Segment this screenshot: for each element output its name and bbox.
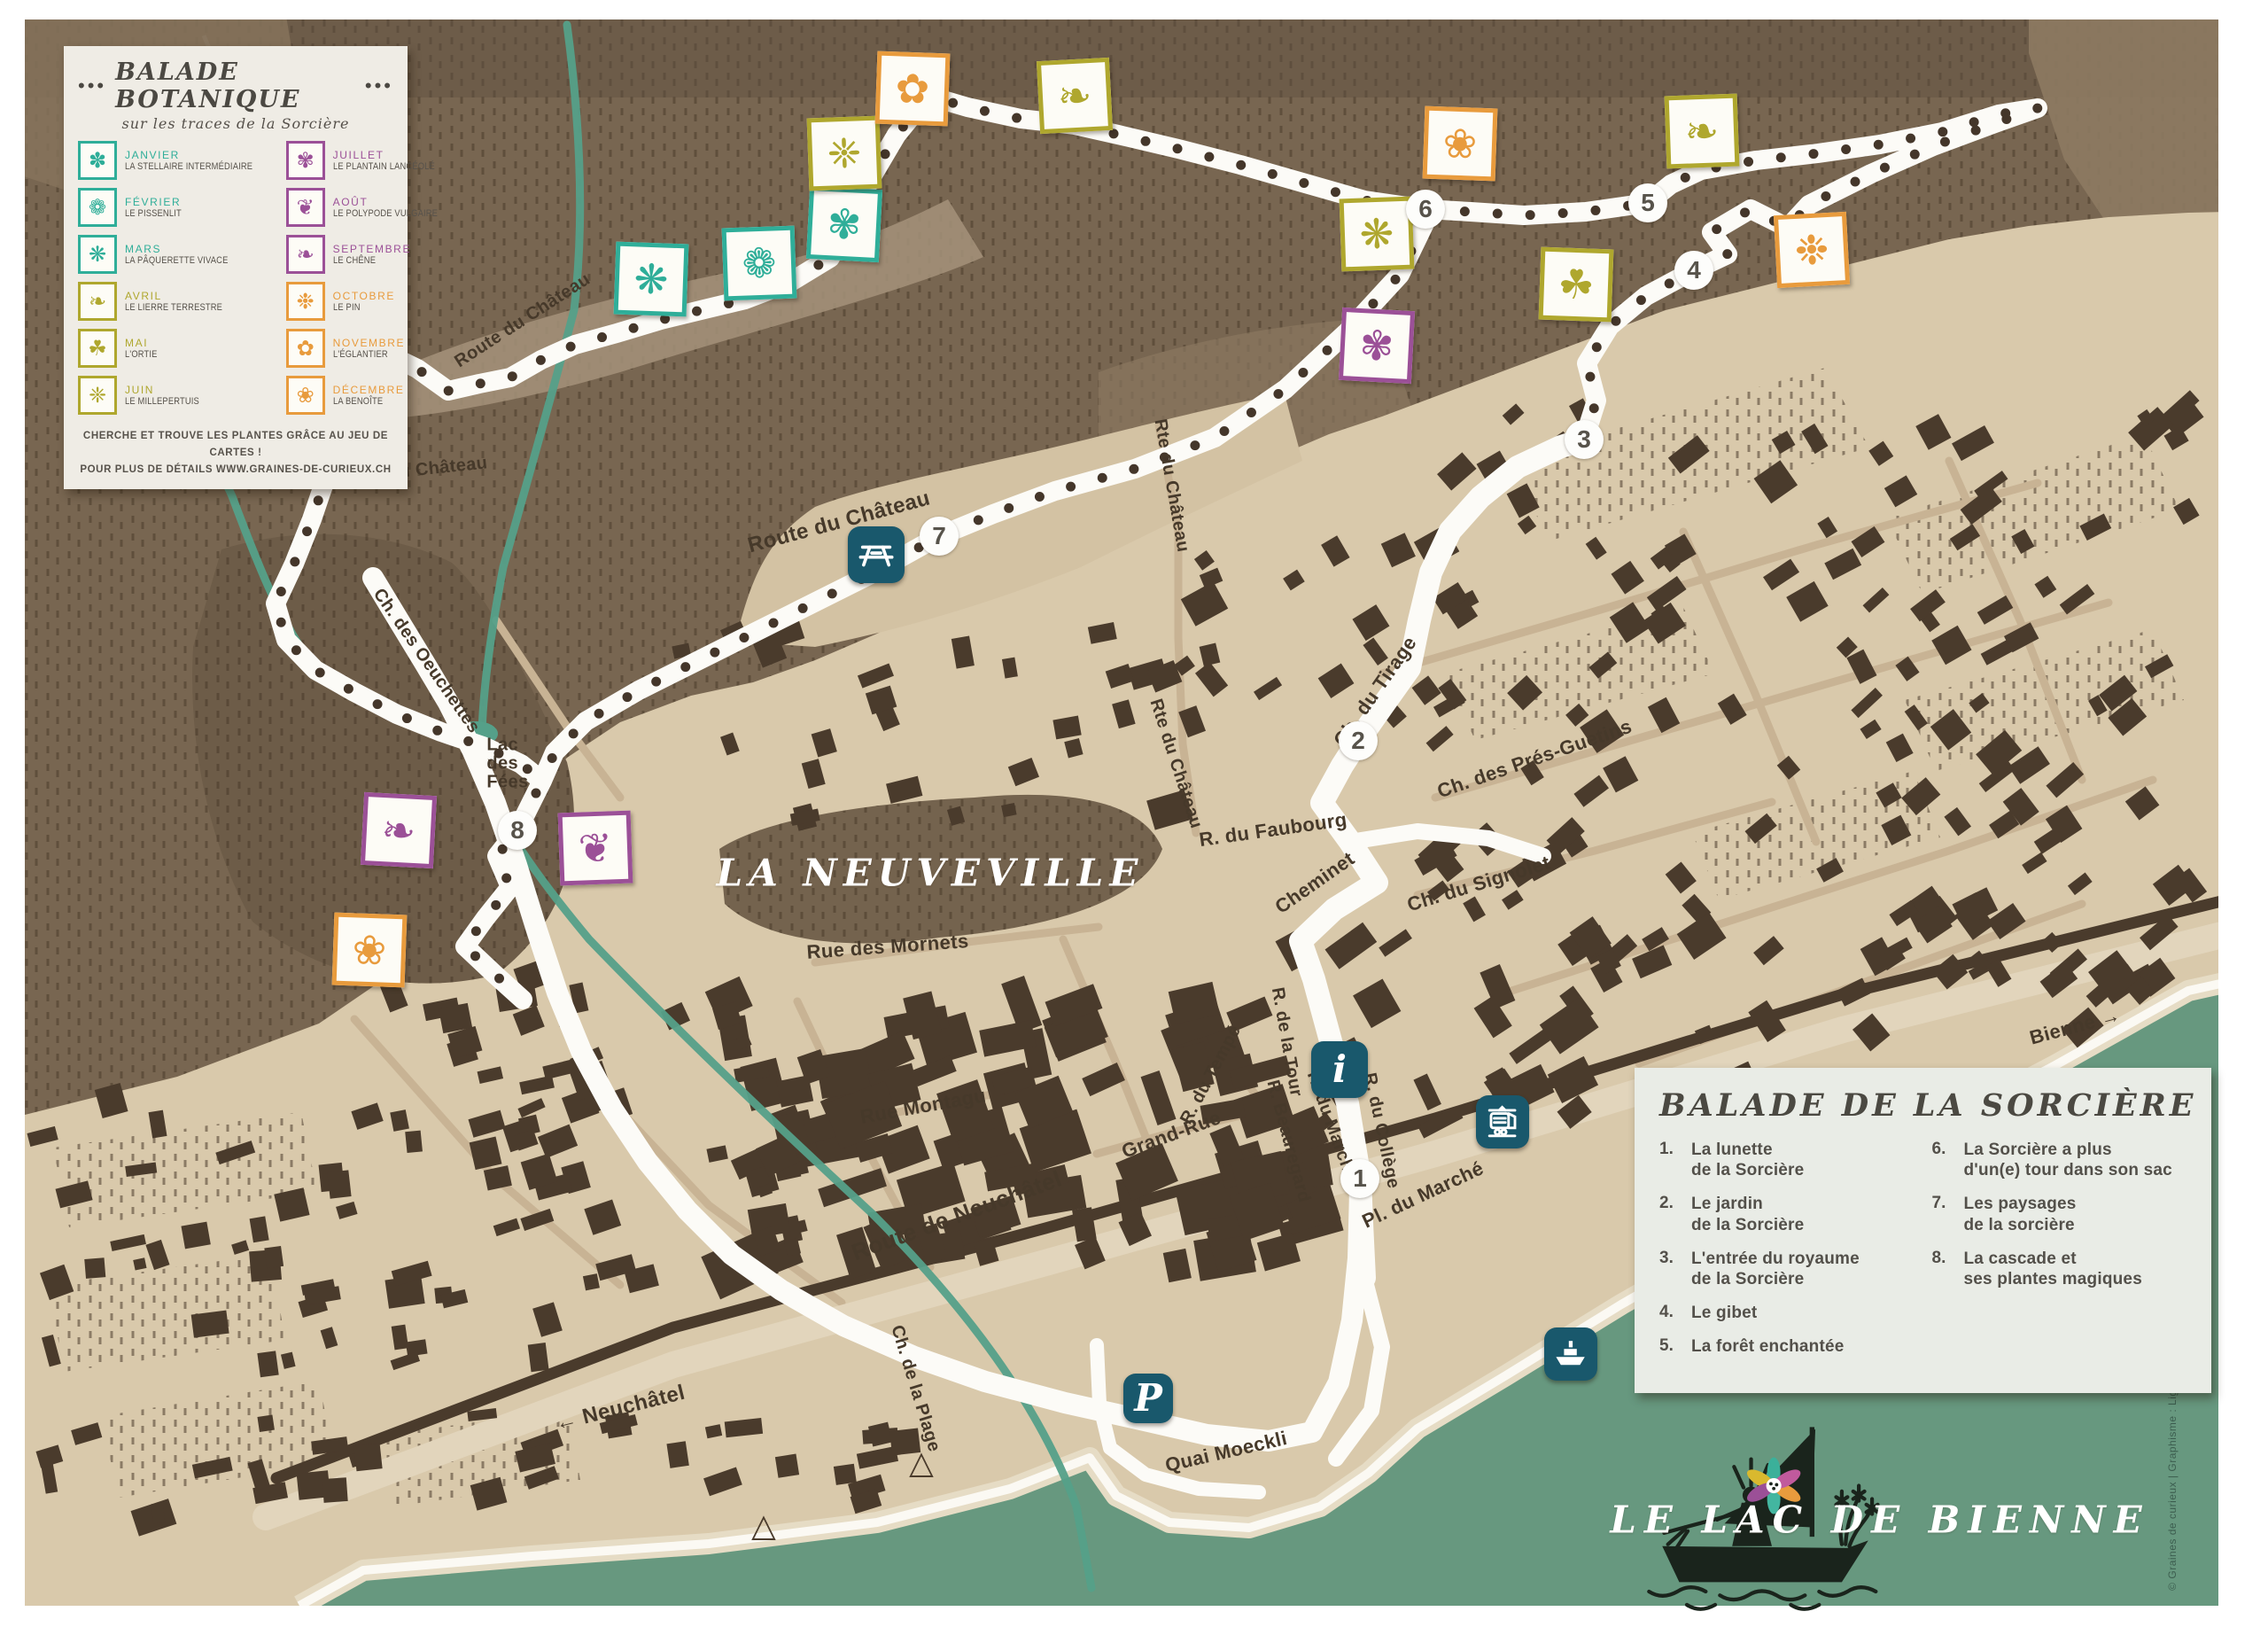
street-label: Quai Moeckli: [1163, 1428, 1289, 1475]
waypoint-6-marker: 6: [1406, 190, 1445, 229]
plant-stamp-icon: ❈: [807, 116, 882, 191]
legend-month-row: ❧SEPTEMBRELE CHÊNE: [286, 235, 456, 274]
sorciere-title: BALADE DE LA SORCIÈRE: [1659, 1087, 2186, 1124]
sorciere-item: 3.L'entrée du royaume de la Sorcière: [1659, 1249, 1915, 1289]
month-name: JANVIER: [125, 149, 276, 161]
legend-month-row: ❈JUINLE MILLEPERTUIS: [78, 376, 276, 415]
campsite-triangle-icon: △: [909, 1445, 934, 1482]
month-name: MARS: [125, 243, 246, 255]
plant-name: LE PLANTAIN LANCÉOLÉ: [333, 161, 435, 172]
street-label: Ch. des Oeuchettes: [369, 586, 483, 737]
plant-stamp-icon: ❉: [1774, 212, 1850, 288]
sorciere-item: 2.Le jardin de la Sorcière: [1659, 1194, 1915, 1234]
sorciere-column-right: 6.La Sorcière a plus d'un(e) tour dans s…: [1932, 1140, 2187, 1370]
sorciere-item: 1.La lunette de la Sorcière: [1659, 1140, 1915, 1180]
sorciere-item: 4.Le gibet: [1659, 1303, 1915, 1323]
plant-stamp-icon: ✾: [806, 186, 882, 262]
plant-name: LE PIN: [333, 302, 386, 313]
legend-month-row: ❁FÉVRIERLE PISSENLIT: [78, 188, 276, 227]
street-label: Rte du Château: [1146, 697, 1205, 830]
plant-name: LE POLYPODE VULGAIRE: [333, 208, 438, 219]
item-text: L'entrée du royaume de la Sorcière: [1691, 1249, 1860, 1289]
plant-name: LE MILLEPERTUIS: [125, 396, 199, 407]
plant-name: LE LIERRE TERRESTRE: [125, 302, 222, 313]
item-number: 5.: [1659, 1336, 1681, 1357]
legend-note-line2: POUR PLUS DE DÉTAILS WWW.GRAINES-DE-CURI…: [78, 462, 393, 479]
street-label: Ch. de la Plage: [887, 1323, 943, 1454]
month-name: FÉVRIER: [125, 196, 191, 208]
sorciere-item: 8.La cascade et ses plantes magiques: [1932, 1249, 2187, 1289]
month-name: JUILLET: [333, 149, 453, 161]
plant-name: LA PÂQUERETTE VIVACE: [125, 255, 229, 266]
month-name: AVRIL: [125, 290, 240, 302]
plant-stamp-icon: ❀: [1423, 106, 1498, 182]
street-label: Ch. du Signolet: [1405, 852, 1553, 915]
months-column-left: ✽JANVIERLA STELLAIRE INTERMÉDIAIRE❁FÉVRI…: [78, 141, 276, 423]
street-label: R. du Faubourg: [1198, 809, 1348, 850]
item-number: 2.: [1659, 1194, 1681, 1234]
month-name: OCTOBRE: [333, 290, 395, 302]
month-name: SEPTEMBRE: [333, 243, 411, 255]
boat-landing-icon: [1544, 1327, 1597, 1381]
street-label: Lac des Fées: [486, 736, 528, 792]
month-name: AOÛT: [333, 196, 456, 208]
street-label: Rue Montagu: [858, 1085, 988, 1127]
legend-month-row: ❀DÉCEMBRELA BENOÎTE: [286, 376, 456, 415]
plant-stamp-icon: ✿: [286, 329, 325, 368]
plant-stamp-icon: ❋: [614, 242, 689, 317]
item-text: Le jardin de la Sorcière: [1691, 1194, 1804, 1234]
legend-month-row: ❉OCTOBRELE PIN: [286, 282, 456, 321]
item-number: 3.: [1659, 1249, 1681, 1289]
street-label: Cheminet: [1271, 848, 1358, 917]
plant-stamp-icon: ❦: [558, 811, 633, 886]
waypoint-4-marker: 4: [1674, 251, 1713, 290]
item-number: 7.: [1932, 1194, 1953, 1234]
botanic-title-row: ••• BALADE BOTANIQUE •••: [78, 58, 393, 113]
plant-stamp-icon: ☘: [1539, 247, 1614, 323]
legend-month-row: ❋MARSLA PÂQUERETTE VIVACE: [78, 235, 276, 274]
waypoint-5-marker: 5: [1628, 183, 1667, 222]
item-text: Les paysages de la sorcière: [1964, 1194, 2077, 1234]
legend-month-row: ❦AOÛTLE POLYPODE VULGAIRE: [286, 188, 456, 227]
sorciere-legend-card: BALADE DE LA SORCIÈRE 1.La lunette de la…: [1635, 1068, 2211, 1393]
street-label: ← Neuchâtel: [553, 1382, 687, 1436]
lake-name-label: LE LAC DE BIENNE: [1610, 1499, 2149, 1542]
legend-month-row: ✽JANVIERLA STELLAIRE INTERMÉDIAIRE: [78, 141, 276, 180]
street-label: Route du Château: [452, 270, 594, 371]
plant-stamp-icon: ✾: [286, 141, 325, 180]
month-name: NOVEMBRE: [333, 337, 405, 349]
tourist-info-icon: i: [1311, 1041, 1368, 1098]
plant-stamp-icon: ✾: [1339, 307, 1415, 384]
plant-stamp-icon: ❧: [1037, 58, 1113, 134]
waypoint-1-marker: 1: [1340, 1159, 1379, 1198]
waypoint-3-marker: 3: [1565, 420, 1604, 459]
item-text: Le gibet: [1691, 1303, 1757, 1323]
sorciere-column-left: 1.La lunette de la Sorcière2.Le jardin d…: [1659, 1140, 1915, 1370]
map-poster: Route du ChâteauRoute du ChâteauRoute du…: [0, 0, 2268, 1627]
street-label: Rue des Mornets: [806, 930, 969, 962]
sorciere-item: 6.La Sorcière a plus d'un(e) tour dans s…: [1932, 1140, 2187, 1180]
title-dots-left: •••: [78, 74, 106, 97]
waypoint-8-marker: 8: [498, 811, 537, 850]
street-label: Bienne →: [2027, 1004, 2122, 1047]
item-text: La cascade et ses plantes magiques: [1964, 1249, 2142, 1289]
parking-icon: P: [1123, 1374, 1173, 1423]
item-number: 1.: [1659, 1140, 1681, 1180]
botanic-title: BALADE BOTANIQUE: [115, 58, 356, 113]
plant-stamp-icon: ☘: [78, 329, 117, 368]
street-label: Pl. du Marché: [1359, 1157, 1487, 1232]
info-letter: i: [1332, 1051, 1347, 1088]
sorciere-item: 5.La forêt enchantée: [1659, 1336, 1915, 1357]
parking-letter: P: [1134, 1380, 1162, 1417]
plant-stamp-icon: ✽: [78, 141, 117, 180]
legend-month-row: ❧AVRILLE LIERRE TERRESTRE: [78, 282, 276, 321]
plant-stamp-icon: ❉: [286, 282, 325, 321]
plant-stamp-icon: ❀: [286, 376, 325, 415]
plant-stamp-icon: ✿: [875, 51, 951, 127]
month-name: MAI: [125, 337, 163, 349]
waypoint-7-marker: 7: [920, 517, 959, 556]
plant-stamp-icon: ❁: [78, 188, 117, 227]
plant-stamp-icon: ❦: [286, 188, 325, 227]
item-number: 8.: [1932, 1249, 1953, 1289]
plant-stamp-icon: ❋: [1340, 197, 1415, 272]
plant-stamp-icon: ❧: [286, 235, 325, 274]
town-name-label: LA NEUVEVILLE: [717, 852, 1145, 895]
plant-stamp-icon: ❀: [332, 913, 408, 988]
legend-note-line1: CHERCHE ET TROUVE LES PLANTES GRÂCE AU J…: [78, 428, 393, 462]
botanic-legend-card: ••• BALADE BOTANIQUE ••• sur les traces …: [64, 46, 408, 489]
plant-stamp-icon: ❁: [722, 226, 797, 301]
train-station-icon: [1476, 1095, 1529, 1148]
plant-stamp-icon: ❈: [78, 376, 117, 415]
plant-stamp-icon: ❧: [78, 282, 117, 321]
item-text: La lunette de la Sorcière: [1691, 1140, 1804, 1180]
plant-name: L'ÉGLANTIER: [333, 349, 394, 360]
campsite-triangle-icon: △: [751, 1508, 776, 1545]
item-number: 6.: [1932, 1140, 1953, 1180]
month-name: JUIN: [125, 384, 213, 396]
item-text: La Sorcière a plus d'un(e) tour dans son…: [1964, 1140, 2172, 1180]
plant-name: LA BENOÎTE: [333, 396, 394, 407]
legend-month-row: ☘MAIL'ORTIE: [78, 329, 276, 368]
legend-month-row: ✾JUILLETLE PLANTAIN LANCÉOLÉ: [286, 141, 456, 180]
waypoint-2-marker: 2: [1339, 721, 1378, 760]
street-label: Grand-Rue: [1119, 1107, 1223, 1162]
street-label: Route de Neuchâtel: [849, 1166, 1065, 1265]
plant-stamp-icon: ❋: [78, 235, 117, 274]
plant-name: L'ORTIE: [125, 349, 158, 360]
item-text: La forêt enchantée: [1691, 1336, 1845, 1357]
month-name: DÉCEMBRE: [333, 384, 405, 396]
legend-month-row: ✿NOVEMBREL'ÉGLANTIER: [286, 329, 456, 368]
title-dots-right: •••: [365, 74, 393, 97]
plant-name: LE PISSENLIT: [125, 208, 182, 219]
plant-name: LA STELLAIRE INTERMÉDIAIRE: [125, 161, 252, 172]
street-label: Rte du Château: [1150, 417, 1192, 554]
plant-stamp-icon: ❧: [361, 792, 437, 868]
months-column-right: ✾JUILLETLE PLANTAIN LANCÉOLÉ❦AOÛTLE POLY…: [286, 141, 456, 423]
street-label: Ch. des Prés-Guetins: [1434, 716, 1634, 802]
sorciere-item: 7.Les paysages de la sorcière: [1932, 1194, 2187, 1234]
plant-stamp-icon: ❧: [1665, 94, 1740, 169]
botanic-subtitle: sur les traces de la Sorcière: [78, 115, 393, 132]
plant-name: LE CHÊNE: [333, 255, 400, 266]
picnic-area-icon: [848, 526, 905, 583]
item-number: 4.: [1659, 1303, 1681, 1323]
